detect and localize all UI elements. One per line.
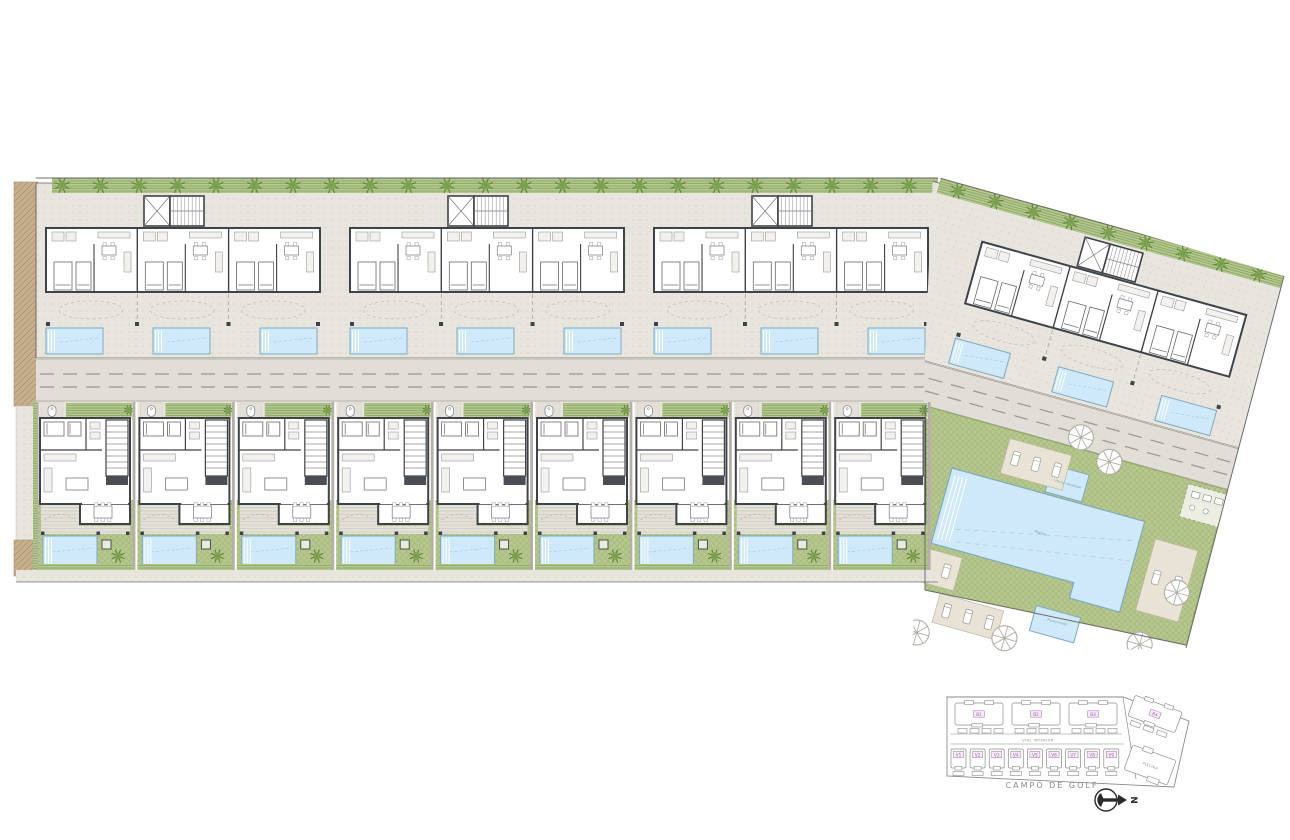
villa-unit-4 bbox=[336, 402, 433, 570]
block-pool bbox=[564, 328, 621, 354]
main-site-plan: B1B2B3V1V2V3V4V5V6V7V8V9B4 bbox=[14, 176, 1290, 788]
villa-pool bbox=[441, 536, 495, 566]
key-plan-label: V9 bbox=[1106, 751, 1116, 757]
villa-unit-9 bbox=[833, 402, 930, 570]
svg-text:B1: B1 bbox=[976, 712, 982, 717]
master-plan-drawing: B1B2B3V1V2V3V4V5V6V7V8V9B4 Piscina Pisci… bbox=[0, 0, 1290, 840]
villa-pool bbox=[540, 536, 594, 566]
key-plan-label: V6 bbox=[1049, 751, 1059, 757]
svg-text:V8: V8 bbox=[1089, 752, 1095, 757]
villa-unit-6 bbox=[535, 402, 632, 570]
svg-text:V3: V3 bbox=[994, 752, 1000, 757]
villa-pool bbox=[242, 536, 296, 566]
key-plan-label: V5 bbox=[1030, 751, 1040, 757]
key-plan-label: B3 bbox=[1088, 711, 1099, 717]
villa-unit-5 bbox=[436, 402, 533, 570]
key-plan-label: V3 bbox=[992, 751, 1002, 757]
villa-unit-1 bbox=[36, 402, 135, 570]
villa-pool bbox=[341, 536, 395, 566]
block-pool bbox=[654, 328, 711, 354]
svg-text:V2: V2 bbox=[975, 752, 981, 757]
key-plan-road-label: VIAL INTERIOR bbox=[1022, 739, 1053, 743]
north-arrow: N bbox=[1095, 789, 1138, 811]
svg-text:V1: V1 bbox=[956, 752, 962, 757]
villa-pool bbox=[43, 536, 97, 566]
block-pool bbox=[46, 328, 103, 354]
villa-unit-2 bbox=[137, 402, 234, 570]
parasol-icon bbox=[901, 617, 932, 648]
block-pool bbox=[350, 328, 407, 354]
key-plan-label: V2 bbox=[973, 751, 983, 757]
key-plan-label: V8 bbox=[1087, 751, 1097, 757]
villa-unit-8 bbox=[734, 402, 831, 570]
villa-pool bbox=[639, 536, 693, 566]
golf-course-label: CAMPO DE GOLF bbox=[1006, 781, 1099, 790]
key-plan-label: V4 bbox=[1011, 751, 1021, 757]
svg-text:V5: V5 bbox=[1032, 752, 1038, 757]
villas-row bbox=[16, 402, 938, 582]
key-plan-label: V1 bbox=[954, 751, 964, 757]
block-pool bbox=[260, 328, 317, 354]
svg-text:V9: V9 bbox=[1109, 752, 1115, 757]
key-plan-label: V7 bbox=[1068, 751, 1078, 757]
north-letter: N bbox=[1128, 796, 1138, 804]
road bbox=[36, 358, 948, 402]
svg-text:B3: B3 bbox=[1090, 712, 1096, 717]
block-pool bbox=[868, 328, 925, 354]
villa-pool bbox=[142, 536, 196, 566]
north-arrow-head bbox=[1118, 795, 1127, 806]
key-plan-label: B2 bbox=[1031, 711, 1042, 717]
block-pool bbox=[153, 328, 210, 354]
key-plan: B1B2B3V1V2V3V4V5V6V7V8V9B4 bbox=[947, 693, 1189, 788]
svg-text:B2: B2 bbox=[1033, 712, 1039, 717]
apartments-band bbox=[36, 178, 942, 358]
villa-unit-7 bbox=[634, 402, 731, 570]
site-plan-canvas: B1B2B3V1V2V3V4V5V6V7V8V9B4 Piscina Pisci… bbox=[0, 0, 1290, 840]
site-plan-generated: B1B2B3V1V2V3V4V5V6V7V8V9B4 bbox=[14, 176, 1290, 788]
villa-pool bbox=[838, 536, 892, 566]
key-plan-label: B1 bbox=[974, 711, 985, 717]
svg-text:V7: V7 bbox=[1070, 752, 1076, 757]
villa-unit-3 bbox=[237, 402, 334, 570]
svg-text:V6: V6 bbox=[1051, 752, 1057, 757]
block-pool bbox=[457, 328, 514, 354]
villa-pool bbox=[739, 536, 793, 566]
block-pool bbox=[761, 328, 818, 354]
svg-text:V4: V4 bbox=[1013, 752, 1019, 757]
